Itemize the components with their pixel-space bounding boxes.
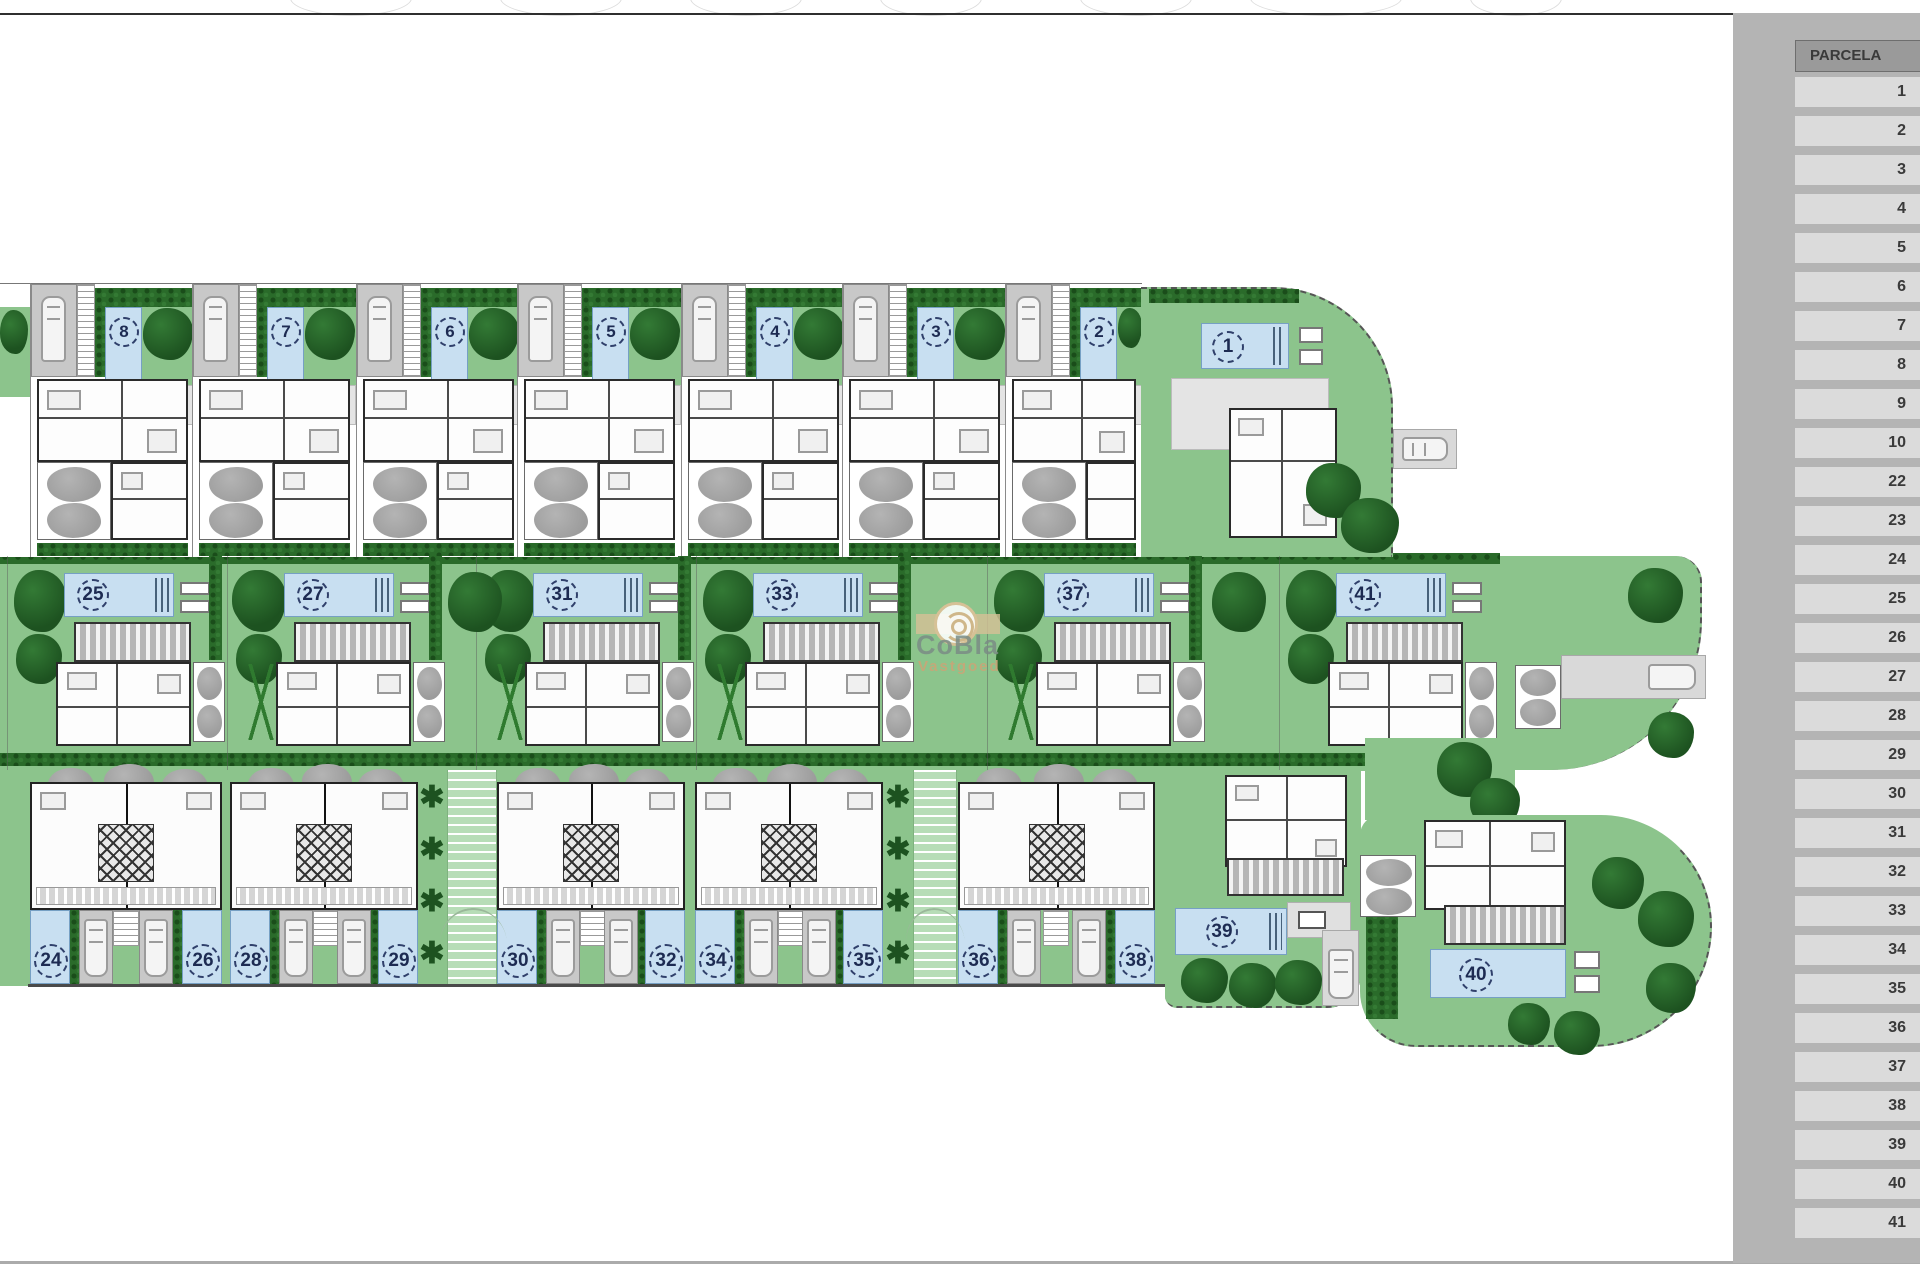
parcel-number-circle[interactable]: 36: [962, 944, 996, 978]
parcela-row-cell[interactable]: 3: [1795, 155, 1920, 185]
hedge: [746, 307, 756, 377]
garage: [79, 910, 113, 984]
pergola: [294, 622, 411, 662]
pool: 41: [1336, 573, 1446, 617]
parcela-row-cell[interactable]: 23: [1795, 506, 1920, 536]
house-plan: [1225, 775, 1347, 867]
hedge: [524, 543, 675, 556]
garage: [518, 284, 564, 377]
house-plan: [276, 662, 411, 746]
parcel-number-circle[interactable]: 6: [435, 317, 465, 347]
pool: 34: [695, 910, 735, 984]
gray-tree-icon: [1366, 888, 1412, 915]
pool: 24: [30, 910, 70, 984]
duplex-30-32: 30 32: [497, 778, 685, 986]
lawn: [954, 307, 1006, 385]
pool: 33: [753, 573, 863, 617]
deck-furniture: [1299, 327, 1323, 343]
tree-icon: [1638, 891, 1694, 947]
gray-tree-icon: [197, 705, 222, 738]
tree-icon: [1648, 712, 1694, 758]
tree-icon: [1212, 572, 1266, 632]
tree-icon: [1341, 498, 1399, 553]
gray-tree-icon: [417, 705, 442, 738]
parcel-number-circle[interactable]: 24: [34, 944, 68, 978]
tree-icon: [703, 570, 755, 632]
hedge: [582, 307, 592, 377]
tree-icon: [469, 308, 519, 360]
parcela-row-cell[interactable]: 36: [1795, 1013, 1920, 1043]
terrace: [964, 887, 1149, 905]
parcel-number-circle[interactable]: 41: [1349, 579, 1381, 611]
duplex-house-plan: [958, 782, 1155, 910]
gray-tree-icon: [209, 467, 263, 502]
pool: 27: [284, 573, 394, 617]
parcela-row-cell[interactable]: 6: [1795, 272, 1920, 302]
walkway: [913, 770, 957, 986]
gray-tree-icon: [1177, 705, 1202, 738]
garage-pool-row: 30 32: [497, 910, 685, 986]
gray-tree-icon: [47, 503, 101, 538]
gray-tree-icon: [1022, 503, 1076, 538]
hedge: [1106, 910, 1115, 984]
parcel-unit-33: 33: [696, 556, 914, 770]
hedge: [363, 543, 514, 556]
parcel-number-circle[interactable]: 4: [760, 317, 790, 347]
garage-pool-row: 36 38: [958, 910, 1155, 986]
tree-icon: [630, 308, 680, 360]
parcela-row-cell[interactable]: 28: [1795, 701, 1920, 731]
pool-steps: [624, 578, 638, 612]
parcel-number-circle[interactable]: 40: [1459, 958, 1493, 992]
hedge: [582, 288, 681, 307]
parcela-row-cell[interactable]: 40: [1795, 1169, 1920, 1199]
bottom-row-edge: [28, 984, 1165, 987]
courtyard: [37, 462, 111, 540]
parcel-1: 1: [1141, 283, 1441, 557]
house-plan: [524, 379, 675, 462]
terrace: [701, 887, 877, 905]
stairs: [580, 910, 606, 946]
duplex-house-plan: [230, 782, 418, 910]
pergola: [1444, 905, 1566, 945]
parcela-row-cell[interactable]: 30: [1795, 779, 1920, 809]
pergola: [1227, 858, 1344, 896]
courtyard: [413, 662, 445, 742]
house-plan: [849, 379, 1000, 462]
pergola: [74, 622, 191, 662]
parcel-number-circle[interactable]: 8: [109, 317, 139, 347]
duplex-house-plan: [497, 782, 685, 910]
tree-icon: [1229, 963, 1276, 1008]
pool: 37: [1044, 573, 1154, 617]
gray-tree-icon: [1177, 667, 1202, 700]
parcela-row-cell[interactable]: 26: [1795, 623, 1920, 653]
hedge: [1366, 901, 1398, 1019]
garage: [31, 284, 77, 377]
duplex-house-plan: [695, 782, 883, 910]
house-plan: [37, 379, 188, 462]
pool: 39: [1175, 908, 1287, 955]
palm-trees: ✱✱✱✱: [418, 772, 446, 980]
trellis: [1008, 664, 1034, 740]
deck-furniture: [1452, 582, 1482, 595]
stairs: [564, 284, 582, 377]
tree-icon: [955, 308, 1005, 360]
gray-tree-icon: [1520, 699, 1556, 726]
hedge: [173, 910, 182, 984]
gray-tree-icon: [886, 667, 911, 700]
parcela-row-cell[interactable]: 9: [1795, 389, 1920, 419]
parcela-row-cell[interactable]: 35: [1795, 974, 1920, 1004]
parcel-number-circle[interactable]: 2: [1084, 317, 1114, 347]
garage: [193, 284, 239, 377]
hedge: [429, 556, 442, 660]
pergola: [1346, 622, 1463, 662]
house-plan: [199, 379, 350, 462]
stairs: [1043, 910, 1069, 946]
car-icon: [1012, 919, 1036, 977]
trellis: [248, 664, 274, 740]
plan-top-border: [0, 13, 1733, 15]
car-icon: [41, 296, 66, 362]
house-plan: [598, 462, 675, 540]
tree-icon: [143, 308, 193, 360]
tree-icon: [1646, 963, 1696, 1013]
hedge: [735, 910, 744, 984]
parcela-panel: PARCELA 12345678910222324252627282930313…: [1733, 13, 1920, 1263]
parcel-number-circle[interactable]: 7: [271, 317, 301, 347]
pergola: [543, 622, 660, 662]
house-plan: [363, 379, 514, 462]
driveway: [1393, 429, 1457, 469]
tree-icon: [1181, 958, 1228, 1003]
car-icon: [692, 296, 717, 362]
pool-steps: [375, 578, 389, 612]
parcela-row-cell[interactable]: 2: [1795, 116, 1920, 146]
tree-icon: [0, 310, 28, 354]
stairs: [728, 284, 746, 377]
stairs: [113, 910, 139, 946]
parcela-row-cell[interactable]: 37: [1795, 1052, 1920, 1082]
parcel-number-circle[interactable]: 1: [1212, 331, 1244, 363]
lawn: [793, 307, 845, 385]
parcel-number-circle[interactable]: 29: [382, 944, 416, 978]
pool: 40: [1430, 949, 1566, 998]
parcel-unit-4: 4: [681, 283, 845, 557]
car-icon: [1648, 664, 1696, 690]
courtyard: [882, 662, 914, 742]
pool-steps: [1273, 327, 1285, 365]
gray-tree-icon: [417, 667, 442, 700]
car-icon: [1016, 296, 1041, 362]
pool-steps: [1135, 578, 1149, 612]
garage-pool-row: 34 35: [695, 910, 883, 986]
pergola: [763, 622, 880, 662]
hedge: [537, 910, 546, 984]
hedge: [907, 307, 917, 377]
parcela-row-cell[interactable]: 22: [1795, 467, 1920, 497]
garage: [802, 910, 836, 984]
tree-icon: [1275, 960, 1322, 1005]
gray-tree-icon: [666, 667, 691, 700]
parcela-row-cell[interactable]: 4: [1795, 194, 1920, 224]
parcel-number-circle[interactable]: 5: [596, 317, 626, 347]
garage: [843, 284, 889, 377]
pool: 26: [182, 910, 222, 984]
terrace: [503, 887, 679, 905]
parcel-unit-7: 7: [192, 283, 356, 557]
duplex-house-plan: [30, 782, 222, 910]
plan-bottom-border: [0, 1261, 1920, 1264]
gray-tree-icon: [534, 467, 588, 502]
garage-pool-row: 28 29: [230, 910, 418, 986]
courtyard: [524, 462, 598, 540]
house-plan: [688, 379, 839, 462]
deck-furniture: [1160, 582, 1190, 595]
car-icon: [1402, 437, 1448, 461]
house-plan: [1424, 820, 1566, 910]
car-icon: [807, 919, 831, 977]
tree-icon: [1286, 570, 1338, 632]
parcel-number-circle[interactable]: 33: [766, 579, 798, 611]
courtyard: [1360, 855, 1416, 917]
garage: [744, 910, 778, 984]
parcel-unit-6: 6: [356, 283, 520, 557]
courtyard: [363, 462, 437, 540]
parcel-40: 40: [1360, 815, 1725, 1057]
tree-icon: [305, 308, 355, 360]
hedge: [270, 910, 279, 984]
hedge: [1070, 307, 1080, 377]
pool: 31: [533, 573, 643, 617]
duplex-28-29: 28 29: [230, 778, 418, 986]
stairs: [1052, 284, 1070, 377]
lawn: [629, 307, 681, 385]
car-icon: [528, 296, 553, 362]
parcel-number-circle[interactable]: 27: [297, 579, 329, 611]
garage: [139, 910, 173, 984]
deck-furniture: [649, 600, 679, 613]
parcel-unit-2: 2: [1005, 283, 1142, 557]
gray-tree-icon: [859, 503, 913, 538]
courtyard: [849, 462, 923, 540]
stairs: [239, 284, 257, 377]
gray-tree-icon: [47, 467, 101, 502]
parcela-row-cell[interactable]: 33: [1795, 896, 1920, 926]
parcela-row-cell[interactable]: 24: [1795, 545, 1920, 575]
house-plan: [273, 462, 350, 540]
house-plan: [1086, 462, 1136, 540]
house-plan: [56, 662, 191, 746]
hedge: [1149, 289, 1299, 303]
stairwell: [563, 824, 619, 882]
pool: 32: [645, 910, 685, 984]
deck-furniture: [400, 600, 430, 613]
car-icon: [84, 919, 108, 977]
parcel-number-circle[interactable]: 38: [1119, 944, 1153, 978]
stairwell: [761, 824, 817, 882]
pool: 28: [230, 910, 270, 984]
pool: 38: [1115, 910, 1155, 984]
stairs: [313, 910, 339, 946]
stairs: [889, 284, 907, 377]
deck-furniture: [180, 600, 210, 613]
parcela-row-cell[interactable]: 32: [1795, 857, 1920, 887]
gray-tree-icon: [1520, 669, 1556, 696]
pergola: [1054, 622, 1171, 662]
parcel-unit-31: 31: [476, 556, 694, 770]
garage: [1072, 910, 1106, 984]
deck-furniture: [1452, 600, 1482, 613]
parcela-row-cell[interactable]: 39: [1795, 1130, 1920, 1160]
lawn: [468, 307, 520, 385]
hedge: [421, 307, 431, 377]
courtyard: [688, 462, 762, 540]
parcela-row-cell[interactable]: 34: [1795, 935, 1920, 965]
deck-furniture: [649, 582, 679, 595]
walkway: [447, 770, 497, 986]
gray-tree-icon: [373, 503, 427, 538]
gray-tree-icon: [698, 503, 752, 538]
stairwell: [98, 824, 154, 882]
garage: [604, 910, 638, 984]
watermark: CoBla Vastgoed: [916, 606, 1008, 678]
car-icon: [367, 296, 392, 362]
parcela-rows: 1234567891022232425262728293031323334353…: [1795, 77, 1920, 1247]
brand-name: CoBla: [916, 630, 999, 661]
parcel-number-circle[interactable]: 31: [546, 579, 578, 611]
gray-tree-icon: [197, 667, 222, 700]
parcela-row-cell[interactable]: 29: [1795, 740, 1920, 770]
stairs: [403, 284, 421, 377]
pool-steps: [844, 578, 858, 612]
hedge: [898, 556, 911, 660]
parcela-row-cell[interactable]: 10: [1795, 428, 1920, 458]
stairs: [77, 284, 95, 377]
tree-icon: [1592, 857, 1644, 909]
parcela-row-cell[interactable]: 41: [1795, 1208, 1920, 1238]
hedge: [70, 910, 79, 984]
house-plan: [437, 462, 514, 540]
hedge: [257, 307, 267, 377]
gray-tree-icon: [886, 705, 911, 738]
parcela-row-cell[interactable]: 38: [1795, 1091, 1920, 1121]
car-icon: [749, 919, 773, 977]
hedge: [678, 556, 691, 660]
courtyard: [199, 462, 273, 540]
gray-tree-icon: [209, 503, 263, 538]
duplex-34-35: 34 35: [695, 778, 883, 986]
parcela-row-cell[interactable]: 27: [1795, 662, 1920, 692]
house-plan: [1036, 662, 1171, 746]
parcel-unit-3: 3: [842, 283, 1006, 557]
hedge: [95, 307, 105, 377]
tree-icon: [232, 570, 284, 628]
car-icon: [342, 919, 366, 977]
stairwell: [1029, 824, 1085, 882]
parcela-header-cell[interactable]: PARCELA: [1795, 40, 1920, 72]
pool-steps: [1269, 913, 1282, 950]
pool: 35: [843, 910, 883, 984]
parcel-unit-37: 37: [987, 556, 1205, 770]
gray-tree-icon: [859, 467, 913, 502]
car-icon: [284, 919, 308, 977]
parcel-number-circle[interactable]: 32: [649, 944, 683, 978]
gray-tree-icon: [373, 467, 427, 502]
parcela-row-cell[interactable]: 31: [1795, 818, 1920, 848]
car-icon: [1077, 919, 1101, 977]
tree-icon: [448, 572, 502, 632]
parcel-number-circle[interactable]: 3: [921, 317, 951, 347]
parcel-number-circle[interactable]: 35: [847, 944, 881, 978]
terrace: [236, 887, 412, 905]
parcela-row-cell[interactable]: 1: [1795, 77, 1920, 107]
house-plan: [745, 662, 880, 746]
garage: [1007, 910, 1041, 984]
parcel-number-circle[interactable]: 39: [1206, 916, 1238, 948]
hedge: [907, 288, 1006, 307]
hedge: [849, 543, 1000, 556]
hedge: [998, 910, 1007, 984]
gray-tree-icon: [1469, 705, 1494, 738]
trellis: [717, 664, 743, 740]
parcela-row-cell[interactable]: 8: [1795, 350, 1920, 380]
lawn: [304, 307, 356, 385]
tree-icon: [14, 570, 66, 632]
brand-subtitle: Vastgoed: [918, 658, 1001, 675]
parcel-number-circle[interactable]: 28: [234, 944, 268, 978]
trellis: [497, 664, 523, 740]
parcela-row-cell[interactable]: 25: [1795, 584, 1920, 614]
deck-furniture: [869, 582, 899, 595]
car-icon: [203, 296, 228, 362]
parcel-number-circle[interactable]: 34: [699, 944, 733, 978]
pool-steps: [1427, 578, 1441, 612]
parcela-row-cell[interactable]: 5: [1795, 233, 1920, 263]
table-icon: [1298, 911, 1326, 929]
garage: [1006, 284, 1052, 377]
partial-unit: [0, 283, 30, 557]
courtyard: [1465, 662, 1497, 742]
parcel-number-circle[interactable]: 25: [77, 579, 109, 611]
parcel-number-circle[interactable]: 37: [1057, 579, 1089, 611]
hedge: [257, 288, 356, 307]
house-plan: [1328, 662, 1463, 746]
parcel-number-circle[interactable]: 26: [186, 944, 220, 978]
house-plan: [923, 462, 1000, 540]
lawn: [1117, 307, 1142, 385]
house-plan: [762, 462, 839, 540]
deck-furniture: [1574, 951, 1600, 969]
hedge: [688, 543, 839, 556]
parcel-unit-25: 25: [7, 556, 225, 770]
parcel-unit-5: 5: [517, 283, 681, 557]
parcela-row-cell[interactable]: 7: [1795, 311, 1920, 341]
tree-icon: [794, 308, 844, 360]
deck-furniture: [180, 582, 210, 595]
courtyard: [662, 662, 694, 742]
driveway: [1322, 930, 1359, 1006]
garage: [357, 284, 403, 377]
garage-pool-row: 24 26: [30, 910, 222, 986]
gray-tree-icon: [1022, 467, 1076, 502]
car-icon: [853, 296, 878, 362]
duplex-36-38: 36 38: [958, 778, 1155, 986]
tree-icon: [1508, 1003, 1550, 1045]
gray-tree-icon: [1366, 859, 1412, 886]
stairwell: [296, 824, 352, 882]
